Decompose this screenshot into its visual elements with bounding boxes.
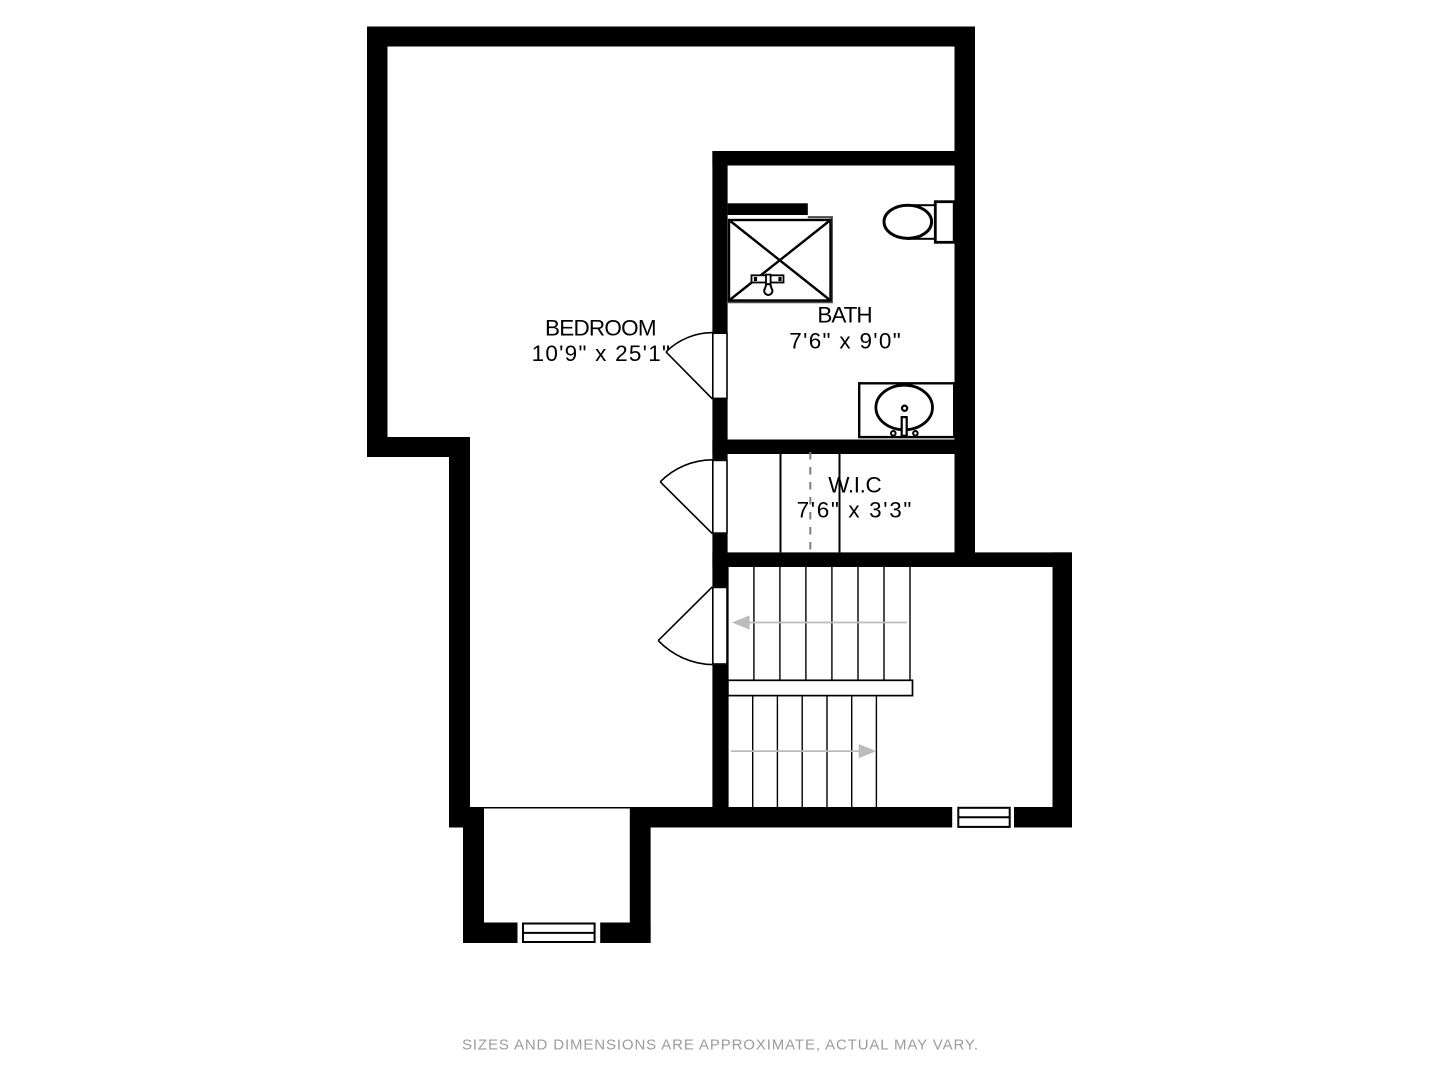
svg-text:10'9" x 25'1": 10'9" x 25'1" (532, 341, 670, 366)
svg-text:W.I.C: W.I.C (828, 472, 881, 497)
svg-text:BEDROOM: BEDROOM (545, 316, 657, 341)
svg-text:BATH: BATH (817, 303, 872, 328)
svg-text:SIZES AND DIMENSIONS ARE APPRO: SIZES AND DIMENSIONS ARE APPROXIMATE, AC… (462, 1036, 978, 1053)
svg-text:7'6" x 9'0": 7'6" x 9'0" (789, 329, 900, 354)
svg-text:7'6" x 3'3": 7'6" x 3'3" (797, 497, 912, 522)
